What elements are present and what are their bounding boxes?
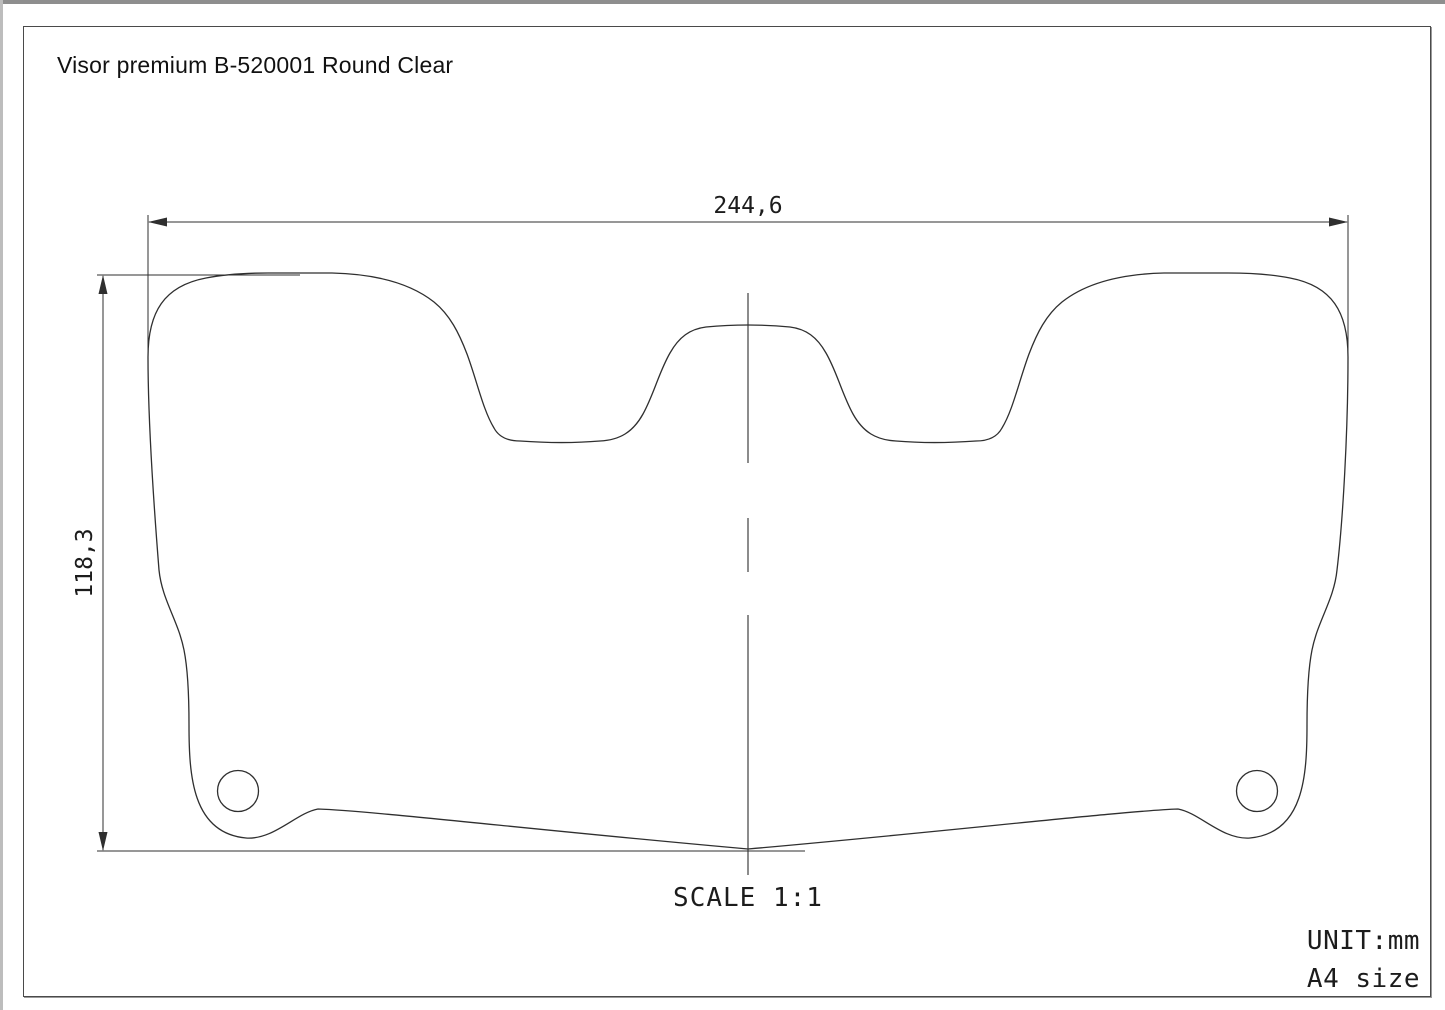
scale-label: SCALE 1:1 [673, 883, 823, 913]
width-dimension-value: 244,6 [713, 193, 782, 219]
left-mounting-hole [218, 771, 259, 812]
width-arrow-right [1329, 218, 1348, 227]
right-mounting-hole [1237, 771, 1278, 812]
height-dimension-value: 118,3 [72, 528, 98, 597]
technical-drawing-canvas: 244,6 118,3 SCALE 1:1 UNIT:mm A4 size [0, 0, 1445, 1010]
height-dimension: 118,3 [72, 275, 805, 851]
unit-label: UNIT:mm [1307, 926, 1420, 956]
width-arrow-left [148, 218, 167, 227]
height-arrow-top [99, 275, 108, 294]
drawing-page: Visor premium B-520001 Round Clear 244,6… [0, 0, 1445, 1010]
paper-size-label: A4 size [1307, 964, 1420, 994]
height-arrow-bottom [99, 832, 108, 851]
